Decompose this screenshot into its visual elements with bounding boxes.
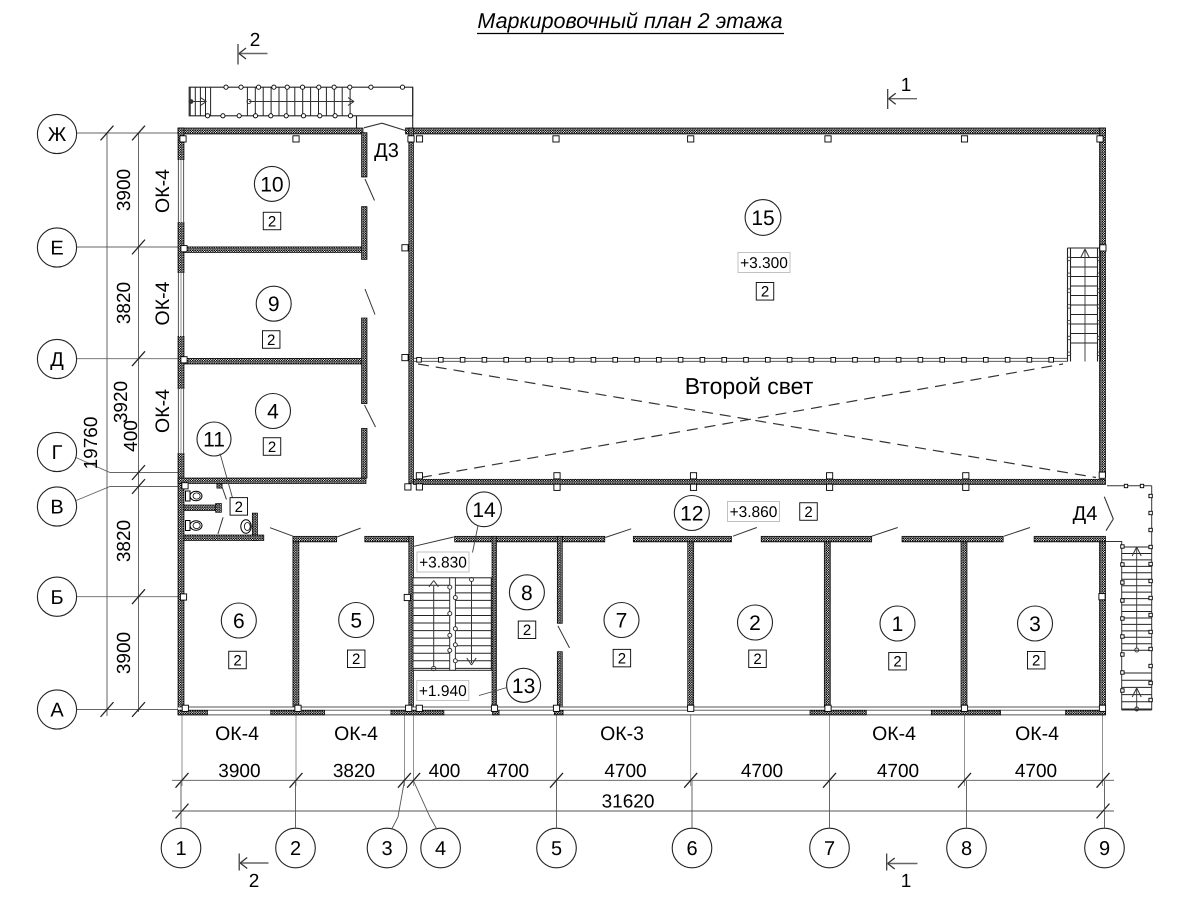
svg-text:14: 14: [472, 499, 496, 522]
svg-text:Е: Е: [50, 238, 63, 260]
svg-text:3900: 3900: [114, 632, 135, 674]
svg-text:4700: 4700: [741, 761, 783, 782]
svg-text:ОК-4: ОК-4: [334, 723, 378, 745]
svg-text:2: 2: [249, 871, 260, 892]
svg-text:1: 1: [901, 75, 912, 96]
svg-text:Б: Б: [50, 587, 63, 609]
svg-text:2: 2: [753, 651, 761, 668]
svg-text:2: 2: [290, 838, 301, 860]
svg-text:400: 400: [121, 420, 142, 452]
svg-text:1: 1: [892, 613, 904, 636]
svg-text:2: 2: [250, 30, 261, 51]
svg-text:Второй свет: Второй свет: [685, 373, 814, 399]
svg-text:+1.940: +1.940: [419, 683, 467, 700]
svg-text:3920: 3920: [111, 381, 132, 423]
svg-text:5: 5: [551, 838, 562, 860]
svg-text:6: 6: [686, 838, 697, 860]
svg-text:Г: Г: [52, 442, 63, 464]
svg-text:3820: 3820: [114, 520, 135, 562]
svg-text:2: 2: [233, 652, 241, 669]
svg-text:+3.860: +3.860: [730, 504, 778, 521]
svg-text:400: 400: [429, 761, 461, 782]
svg-text:ОК-4: ОК-4: [215, 723, 259, 745]
svg-text:ОК-4: ОК-4: [1015, 723, 1059, 745]
svg-text:11: 11: [203, 428, 225, 451]
svg-text:6: 6: [233, 610, 245, 633]
svg-text:8: 8: [961, 838, 972, 860]
svg-text:4: 4: [435, 838, 446, 860]
svg-text:ОК-3: ОК-3: [600, 723, 644, 745]
svg-text:2: 2: [804, 504, 812, 521]
svg-text:ОК-4: ОК-4: [872, 723, 916, 745]
svg-text:ОК-4: ОК-4: [152, 389, 174, 433]
svg-text:3: 3: [381, 838, 392, 860]
svg-text:4700: 4700: [604, 761, 646, 782]
svg-text:12: 12: [680, 502, 703, 525]
svg-text:4700: 4700: [877, 761, 919, 782]
svg-text:ОК-4: ОК-4: [152, 281, 174, 325]
svg-text:Д3: Д3: [374, 140, 399, 162]
svg-text:5: 5: [350, 609, 362, 632]
svg-text:8: 8: [521, 582, 533, 605]
svg-text:2: 2: [235, 499, 243, 516]
svg-text:7: 7: [616, 609, 628, 632]
svg-text:9: 9: [268, 293, 280, 316]
svg-text:1: 1: [901, 871, 912, 892]
svg-text:2: 2: [893, 654, 901, 671]
svg-text:31620: 31620: [602, 792, 655, 813]
svg-text:3: 3: [1029, 613, 1041, 636]
svg-text:Ж: Ж: [48, 124, 67, 146]
svg-text:13: 13: [512, 675, 535, 698]
svg-text:2: 2: [749, 612, 761, 635]
svg-text:2: 2: [268, 439, 276, 456]
svg-text:19760: 19760: [81, 417, 102, 470]
svg-text:Маркировочный план 2 этажа: Маркировочный план 2 этажа: [477, 9, 782, 33]
svg-text:3900: 3900: [114, 169, 135, 211]
svg-text:3820: 3820: [333, 761, 375, 782]
svg-text:ОК-4: ОК-4: [152, 169, 174, 213]
svg-text:3820: 3820: [114, 282, 135, 324]
svg-text:2: 2: [523, 622, 531, 639]
svg-text:15: 15: [751, 207, 774, 230]
svg-text:7: 7: [824, 838, 835, 860]
svg-text:3900: 3900: [218, 761, 260, 782]
svg-text:9: 9: [1099, 838, 1110, 860]
svg-text:Д: Д: [50, 349, 64, 371]
svg-text:4700: 4700: [1015, 761, 1057, 782]
svg-text:2: 2: [761, 284, 769, 301]
svg-text:1: 1: [175, 838, 186, 860]
svg-text:Д4: Д4: [1073, 503, 1098, 525]
svg-text:2: 2: [267, 332, 275, 349]
svg-text:2: 2: [352, 651, 360, 668]
svg-text:10: 10: [260, 173, 283, 196]
svg-text:+3.830: +3.830: [419, 555, 467, 572]
svg-text:4: 4: [267, 400, 279, 423]
svg-text:+3.300: +3.300: [740, 255, 788, 272]
svg-text:2: 2: [1032, 653, 1040, 670]
svg-text:2: 2: [268, 213, 276, 230]
svg-text:В: В: [50, 497, 63, 519]
svg-text:2: 2: [618, 651, 626, 668]
svg-text:А: А: [50, 700, 64, 722]
svg-text:4700: 4700: [487, 761, 529, 782]
